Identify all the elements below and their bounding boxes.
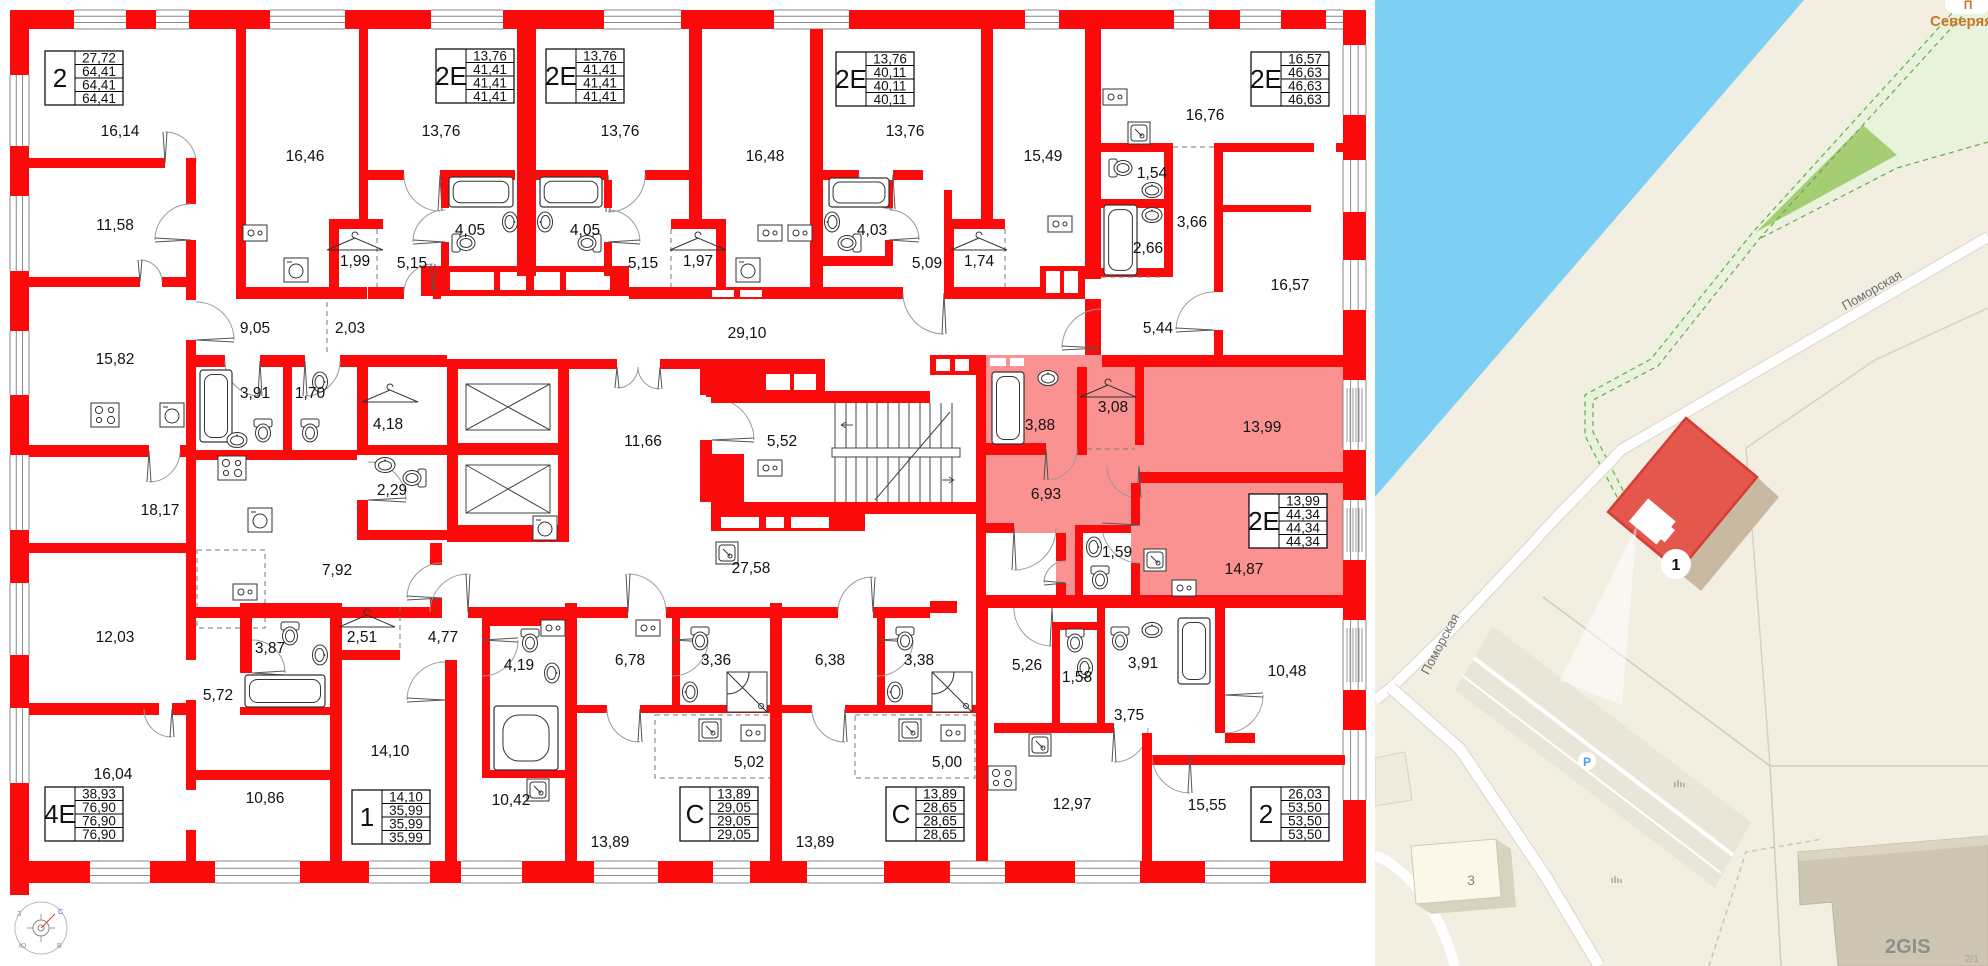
svg-text:2Е: 2Е (1248, 506, 1280, 536)
svg-text:4,03: 4,03 (857, 222, 887, 239)
svg-text:Ю: Ю (19, 943, 26, 950)
svg-text:1,99: 1,99 (340, 253, 370, 270)
svg-text:4,19: 4,19 (504, 657, 534, 674)
svg-text:6,93: 6,93 (1031, 486, 1061, 503)
svg-text:4,77: 4,77 (428, 629, 458, 646)
svg-text:16,04: 16,04 (94, 766, 133, 783)
svg-text:13,76: 13,76 (886, 123, 925, 140)
svg-text:3,36: 3,36 (701, 652, 731, 669)
svg-text:12,97: 12,97 (1053, 796, 1092, 813)
svg-text:3,66: 3,66 (1177, 214, 1207, 231)
svg-text:16,57: 16,57 (1271, 277, 1310, 294)
svg-text:3,88: 3,88 (1025, 417, 1055, 434)
svg-text:5,15: 5,15 (628, 255, 658, 272)
svg-text:53,50: 53,50 (1288, 827, 1322, 842)
svg-text:2Е: 2Е (435, 61, 467, 91)
svg-text:5,52: 5,52 (767, 433, 797, 450)
svg-text:35,99: 35,99 (389, 830, 423, 845)
svg-text:З: З (17, 911, 21, 918)
svg-text:10,86: 10,86 (246, 790, 285, 807)
svg-text:41,41: 41,41 (583, 89, 617, 104)
svg-text:2Е: 2Е (835, 64, 867, 94)
svg-text:6,78: 6,78 (615, 652, 645, 669)
svg-text:29,05: 29,05 (717, 827, 751, 842)
svg-text:4Е: 4Е (44, 799, 76, 829)
svg-text:1,70: 1,70 (295, 385, 326, 402)
svg-text:27,58: 27,58 (732, 560, 771, 577)
svg-text:14,87: 14,87 (1225, 561, 1264, 578)
svg-text:2Е: 2Е (545, 61, 577, 91)
svg-text:2/1: 2/1 (1965, 954, 1979, 965)
svg-text:15,82: 15,82 (96, 351, 135, 368)
svg-text:2: 2 (53, 63, 67, 93)
svg-text:1,59: 1,59 (1102, 544, 1132, 561)
svg-text:2,03: 2,03 (335, 320, 365, 337)
svg-text:76,90: 76,90 (82, 827, 116, 842)
svg-text:3,38: 3,38 (904, 652, 934, 669)
svg-text:4,05: 4,05 (570, 222, 600, 239)
svg-text:П: П (1964, 0, 1973, 12)
svg-text:2,51: 2,51 (347, 629, 377, 646)
svg-text:12,03: 12,03 (96, 629, 135, 646)
svg-text:2,29: 2,29 (377, 482, 407, 499)
svg-text:1,97: 1,97 (683, 253, 713, 270)
svg-text:5,72: 5,72 (203, 687, 233, 704)
svg-text:13,76: 13,76 (422, 123, 461, 140)
svg-text:11,66: 11,66 (624, 433, 662, 450)
svg-text:15,55: 15,55 (1188, 797, 1227, 814)
svg-text:13,89: 13,89 (591, 834, 630, 851)
svg-text:1,58: 1,58 (1062, 669, 1092, 686)
svg-text:14,10: 14,10 (371, 743, 410, 760)
svg-text:5,02: 5,02 (734, 754, 764, 771)
svg-text:64,41: 64,41 (82, 91, 116, 106)
svg-text:16,46: 16,46 (286, 148, 325, 165)
svg-text:41,41: 41,41 (473, 89, 507, 104)
svg-text:3,91: 3,91 (1128, 655, 1158, 672)
svg-text:2GIS: 2GIS (1885, 936, 1931, 958)
svg-text:С: С (58, 909, 63, 916)
svg-text:3,91: 3,91 (240, 385, 270, 402)
svg-text:46,63: 46,63 (1288, 92, 1322, 107)
svg-text:44,34: 44,34 (1286, 534, 1320, 549)
svg-text:5,00: 5,00 (932, 754, 963, 771)
svg-text:5,44: 5,44 (1143, 320, 1174, 337)
svg-text:С: С (892, 799, 911, 829)
svg-text:16,48: 16,48 (746, 148, 785, 165)
svg-text:3,75: 3,75 (1114, 707, 1144, 724)
svg-text:13,89: 13,89 (796, 834, 835, 851)
svg-text:2Е: 2Е (1250, 64, 1282, 94)
svg-text:4,18: 4,18 (373, 416, 403, 433)
svg-text:11,58: 11,58 (96, 217, 134, 234)
svg-text:В: В (57, 943, 62, 950)
svg-text:16,76: 16,76 (1186, 107, 1225, 124)
svg-text:5,09: 5,09 (912, 255, 942, 272)
svg-text:1,54: 1,54 (1137, 165, 1168, 182)
svg-text:2,66: 2,66 (1133, 240, 1163, 257)
svg-text:29,10: 29,10 (728, 325, 767, 342)
svg-text:3: 3 (1467, 872, 1475, 888)
svg-text:16,14: 16,14 (101, 123, 140, 140)
svg-text:1: 1 (1672, 557, 1681, 574)
svg-text:9,05: 9,05 (240, 320, 270, 337)
svg-text:10,48: 10,48 (1268, 663, 1307, 680)
svg-text:1,74: 1,74 (964, 253, 995, 270)
svg-text:4,05: 4,05 (455, 222, 485, 239)
svg-text:1: 1 (360, 802, 374, 832)
svg-text:15,49: 15,49 (1024, 148, 1063, 165)
svg-text:7,92: 7,92 (322, 562, 352, 579)
svg-text:С: С (686, 799, 705, 829)
svg-text:Северяяночка: Северяяночка (1930, 13, 1988, 30)
svg-text:10,42: 10,42 (492, 792, 531, 809)
svg-text:Р: Р (1583, 755, 1591, 769)
svg-text:13,76: 13,76 (601, 123, 640, 140)
svg-text:3,08: 3,08 (1098, 399, 1128, 416)
svg-text:2: 2 (1259, 799, 1273, 829)
svg-text:28,65: 28,65 (923, 827, 957, 842)
svg-text:18,17: 18,17 (141, 502, 180, 519)
svg-text:5,26: 5,26 (1012, 657, 1042, 674)
svg-text:6,38: 6,38 (815, 652, 845, 669)
svg-text:40,11: 40,11 (874, 92, 907, 107)
svg-text:3,87: 3,87 (255, 640, 285, 657)
svg-text:5,15: 5,15 (397, 255, 427, 272)
svg-text:13,99: 13,99 (1243, 419, 1282, 436)
